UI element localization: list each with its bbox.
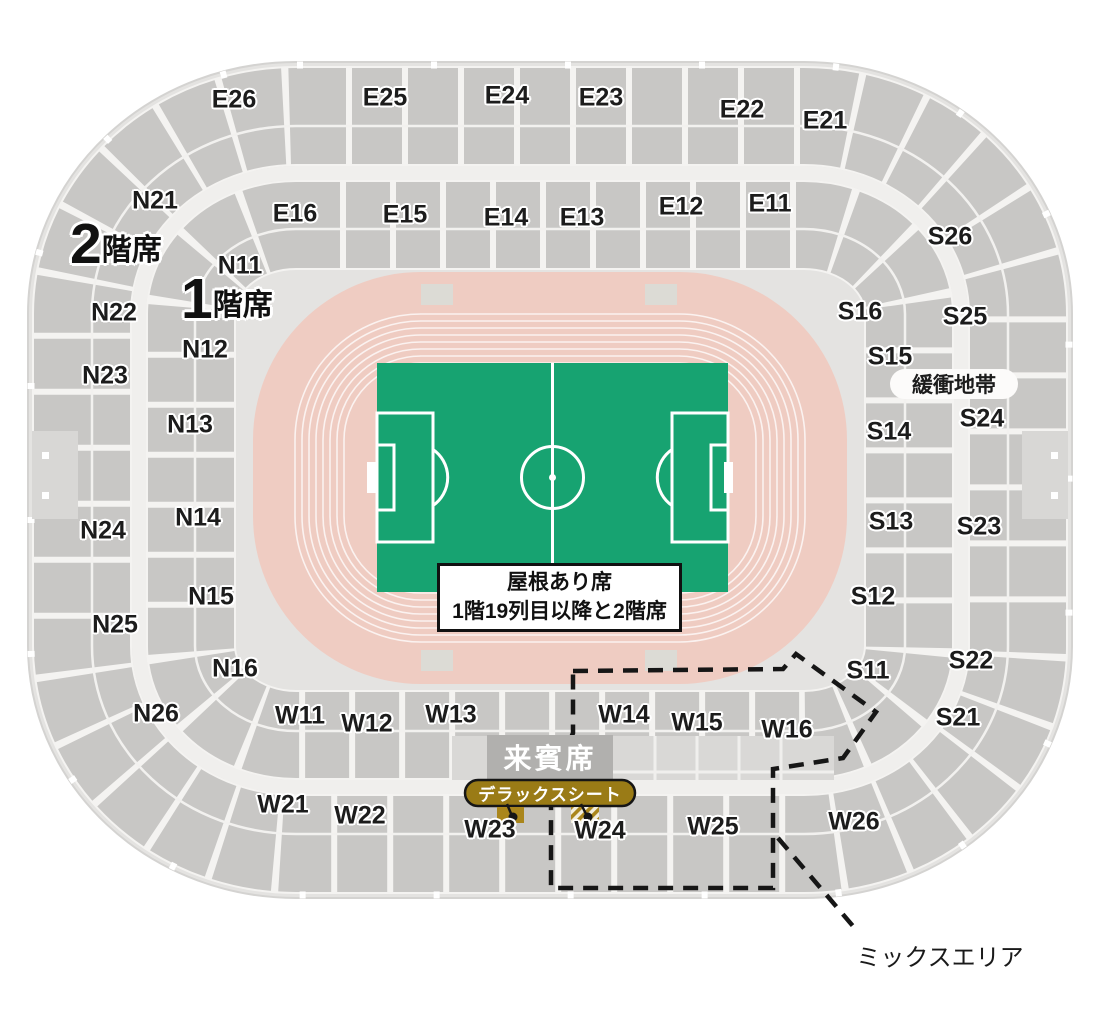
section-label-n23: N23	[82, 362, 128, 391]
section-label-w26: W26	[828, 808, 879, 837]
floor-1f-number: 1	[181, 276, 213, 323]
section-label-w16: W16	[761, 716, 812, 745]
section-label-e11: E11	[748, 190, 791, 219]
section-label-e12: E12	[659, 193, 703, 222]
section-label-n16: N16	[212, 655, 258, 684]
section-label-n22: N22	[91, 299, 137, 328]
stadium-graphic	[0, 0, 1100, 1034]
left-screen	[32, 431, 78, 519]
section-label-s15: S15	[868, 343, 912, 372]
section-label-n12: N12	[182, 336, 228, 365]
section-label-s14: S14	[867, 418, 911, 447]
section-label-e23: E23	[579, 84, 623, 113]
floor-2f-suffix: 階席	[102, 236, 162, 268]
section-label-n14: N14	[175, 504, 221, 533]
section-label-e16: E16	[273, 200, 317, 229]
section-label-s11: S11	[846, 657, 889, 686]
buffer-zone-pill: 緩衝地帯	[890, 369, 1018, 399]
center-spot	[549, 474, 556, 481]
section-label-e15: E15	[383, 201, 427, 230]
floor-2f-number: 2	[70, 221, 102, 268]
stadium-seating-map: E26E25E24E23E22E21E16E15E14E13E12E11N21N…	[0, 0, 1100, 1034]
right-goal	[724, 462, 733, 493]
right-screen	[1022, 431, 1068, 519]
section-label-w15: W15	[671, 709, 722, 738]
section-label-s24: S24	[960, 405, 1004, 434]
deluxe-seat-label: デラックスシート	[478, 781, 622, 806]
section-label-w13: W13	[425, 701, 476, 730]
section-label-s25: S25	[943, 303, 987, 332]
section-label-s26: S26	[928, 223, 972, 252]
section-label-s12: S12	[851, 583, 895, 612]
section-label-n21: N21	[132, 187, 178, 216]
section-label-s21: S21	[936, 704, 980, 733]
section-label-n13: N13	[167, 411, 213, 440]
roof-note-line2: 1階19列目以降と2階席	[452, 598, 667, 626]
section-label-e24: E24	[485, 82, 529, 111]
section-label-w22: W22	[334, 802, 385, 831]
vip-seat-label: 来賓席	[503, 737, 596, 777]
section-label-e22: E22	[720, 96, 764, 125]
section-label-e21: E21	[803, 107, 847, 136]
section-label-s22: S22	[949, 647, 993, 676]
section-label-e14: E14	[484, 204, 528, 233]
floor-1f-suffix: 階席	[213, 291, 273, 323]
roof-note-callout: 屋根あり席 1階19列目以降と2階席	[437, 563, 682, 632]
soccer-pitch	[367, 363, 733, 592]
section-label-n25: N25	[92, 611, 138, 640]
section-label-s13: S13	[869, 508, 913, 537]
section-label-w21: W21	[257, 791, 308, 820]
section-label-e26: E26	[212, 86, 256, 115]
section-label-w11: W11	[275, 702, 325, 731]
section-label-w25: W25	[687, 813, 738, 842]
section-label-s23: S23	[957, 513, 1001, 542]
left-goal	[367, 462, 376, 493]
mix-area-label: ミックスエリア	[856, 938, 1023, 973]
section-label-n24: N24	[80, 517, 126, 546]
section-label-n26: N26	[133, 700, 179, 729]
section-label-w24: W24	[574, 817, 625, 846]
section-label-s16: S16	[838, 298, 882, 327]
section-label-w23: W23	[464, 816, 515, 845]
roof-note-line1: 屋根あり席	[507, 569, 612, 597]
section-label-n15: N15	[188, 583, 234, 612]
section-label-w12: W12	[341, 710, 392, 739]
floor-2f-label: 2階席	[70, 221, 162, 268]
section-label-e13: E13	[560, 204, 604, 233]
section-label-w14: W14	[598, 701, 649, 730]
floor-1f-label: 1階席	[181, 276, 273, 323]
section-label-e25: E25	[363, 84, 407, 113]
